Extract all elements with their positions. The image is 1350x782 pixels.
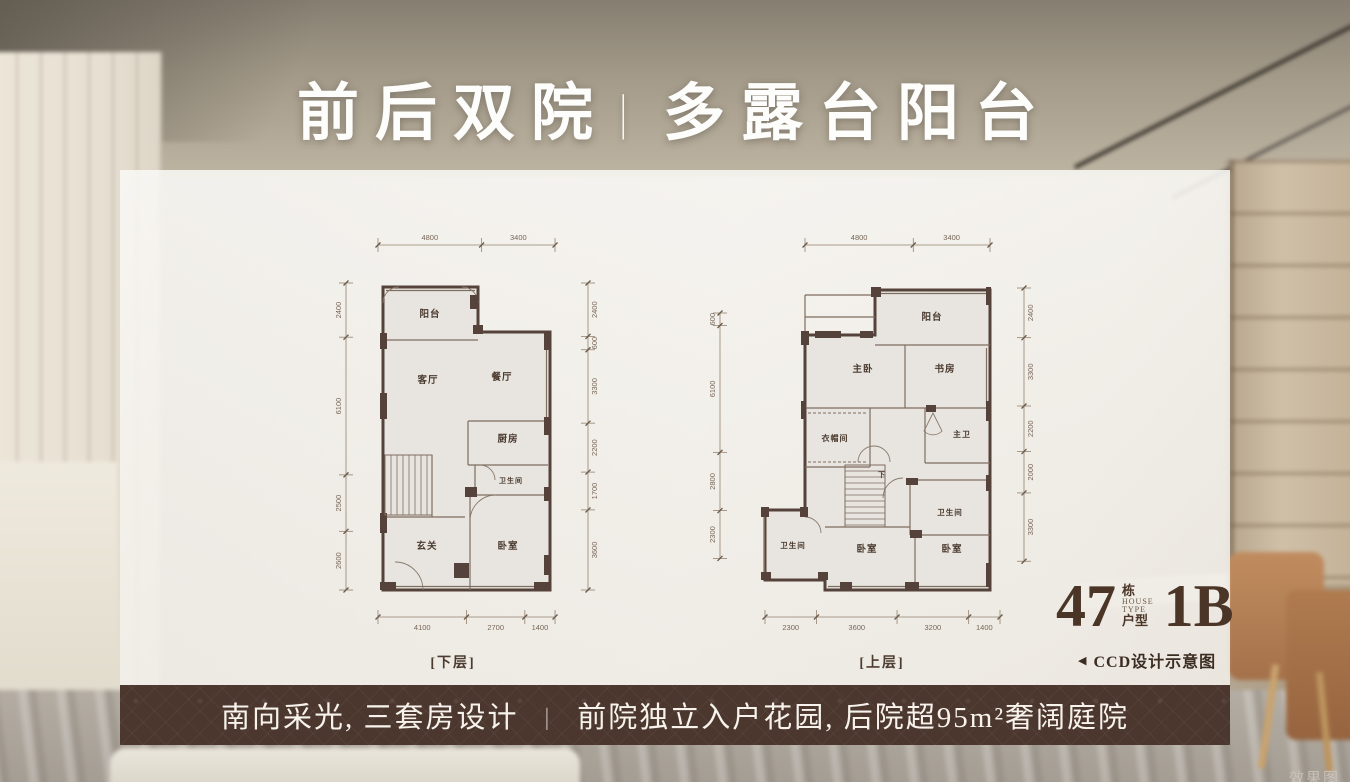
svg-text:阳台: 阳台 (921, 311, 942, 323)
svg-text:2600: 2600 (334, 552, 343, 569)
svg-text:书房: 书房 (934, 363, 955, 375)
banner-right: 前院独立入户花园, 后院超95m²奢阔庭院 (577, 702, 1129, 734)
svg-text:3300: 3300 (1026, 519, 1035, 536)
title-left: 前后双院 (297, 80, 609, 148)
unit-label-middle: 栋 HOUSE TYPE 户型 (1122, 584, 1154, 628)
floorplan-lower: 阳台客厅餐厅厨房卫生间玄关卧室4800340024006100250026002… (330, 225, 630, 675)
svg-text:2300: 2300 (708, 526, 717, 543)
left-arrow-icon: ◀ (1078, 654, 1087, 667)
svg-text:3600: 3600 (590, 542, 599, 559)
svg-text:主卧: 主卧 (852, 363, 873, 375)
svg-text:卫生间: 卫生间 (937, 507, 963, 517)
svg-text:卧室: 卧室 (856, 543, 877, 555)
banner-left: 南向采光, 三套房设计 (221, 702, 519, 734)
caption-lower-floor: [下层] (430, 652, 475, 672)
svg-text:3400: 3400 (943, 233, 960, 242)
svg-text:客厅: 客厅 (416, 374, 438, 386)
svg-text:4800: 4800 (421, 233, 438, 242)
svg-text:3300: 3300 (1026, 363, 1035, 380)
svg-text:2400: 2400 (334, 302, 343, 319)
svg-text:600: 600 (708, 313, 717, 326)
svg-text:6100: 6100 (708, 381, 717, 398)
svg-text:3600: 3600 (848, 623, 865, 632)
svg-text:2800: 2800 (708, 473, 717, 490)
feature-banner: 南向采光, 三套房设计|前院独立入户花园, 后院超95m²奢阔庭院 (120, 685, 1230, 745)
dining-chair (1286, 590, 1350, 740)
floorplan-upper: 阳台主卧书房衣帽间主卫卫生间卫生间卧室卧室下480034006006100280… (700, 225, 1040, 675)
page-title: 前后双院|多露台阳台 (0, 62, 1350, 152)
svg-text:餐厅: 餐厅 (490, 371, 512, 383)
svg-text:玄关: 玄关 (416, 540, 437, 552)
house-cn: 户型 (1122, 614, 1154, 628)
caption-upper-floor: [上层] (859, 652, 904, 672)
watermark: 效果图 (1289, 767, 1340, 782)
page: 前后双院|多露台阳台 阳台客厅餐厅厨房卫生间玄关卧室48003400240061… (0, 0, 1350, 782)
floorplan-panel: 阳台客厅餐厅厨房卫生间玄关卧室4800340024006100250026002… (120, 170, 1230, 685)
svg-text:卧室: 卧室 (497, 540, 518, 552)
unit-type: 1B (1164, 576, 1234, 636)
svg-text:2400: 2400 (590, 301, 599, 318)
shelving-unit (1230, 160, 1350, 585)
svg-text:2200: 2200 (1026, 420, 1035, 437)
svg-text:阳台: 阳台 (419, 308, 440, 320)
svg-text:衣帽间: 衣帽间 (822, 433, 849, 443)
building-suffix: 栋 (1122, 584, 1154, 598)
svg-text:厨房: 厨房 (497, 433, 518, 445)
design-note: ◀ CCD设计示意图 (1078, 648, 1216, 672)
svg-text:2200: 2200 (590, 439, 599, 456)
svg-text:4100: 4100 (414, 623, 431, 632)
sofa (110, 748, 580, 782)
svg-text:2400: 2400 (1026, 304, 1035, 321)
svg-text:卫生间: 卫生间 (499, 476, 523, 485)
svg-text:600: 600 (590, 337, 599, 350)
svg-text:2500: 2500 (334, 495, 343, 512)
svg-text:1400: 1400 (532, 623, 549, 632)
svg-text:下: 下 (878, 471, 886, 479)
svg-text:3200: 3200 (925, 623, 942, 632)
cabinet (0, 462, 117, 692)
svg-text:4800: 4800 (851, 233, 868, 242)
svg-text:主卫: 主卫 (953, 429, 971, 439)
banner-text: 南向采光, 三套房设计|前院独立入户花园, 后院超95m²奢阔庭院 (221, 694, 1129, 736)
svg-text:2300: 2300 (782, 623, 799, 632)
svg-text:3300: 3300 (590, 378, 599, 395)
svg-text:2700: 2700 (487, 623, 504, 632)
svg-text:1700: 1700 (590, 483, 599, 500)
design-note-text: CCD设计示意图 (1093, 648, 1216, 672)
title-right: 多露台阳台 (663, 80, 1053, 148)
svg-text:3400: 3400 (510, 233, 527, 242)
title-separator: | (620, 83, 636, 141)
svg-text:卫生间: 卫生间 (780, 540, 806, 550)
svg-text:6100: 6100 (334, 398, 343, 415)
banner-separator: | (544, 705, 551, 732)
building-number: 47 (1056, 576, 1116, 636)
unit-label: 47 栋 HOUSE TYPE 户型 1B (1056, 576, 1234, 636)
svg-text:2000: 2000 (1026, 464, 1035, 481)
svg-text:卧室: 卧室 (941, 543, 962, 555)
svg-text:1400: 1400 (976, 623, 993, 632)
